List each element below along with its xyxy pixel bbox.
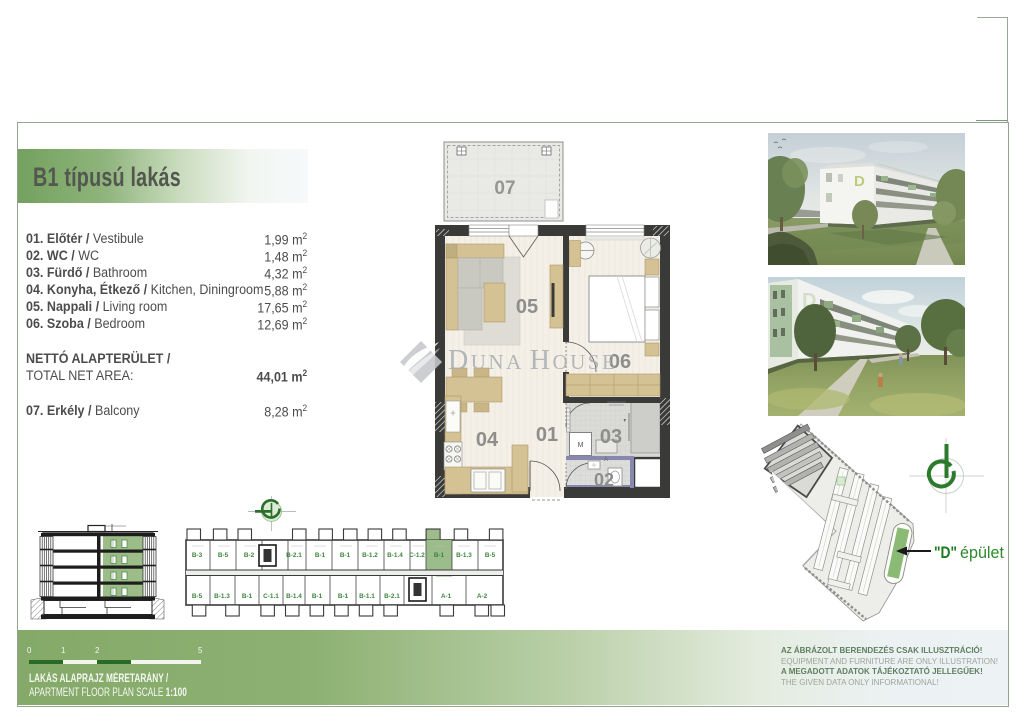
svg-text:07: 07 — [494, 178, 515, 199]
svg-text:B-2.1: B-2.1 — [286, 552, 302, 559]
svg-text:A: A — [604, 457, 608, 463]
svg-text:B-1.4: B-1.4 — [286, 593, 302, 600]
svg-text:épület: épület — [960, 544, 1004, 562]
svg-text:B-1: B-1 — [315, 552, 326, 559]
svg-text:B-2.1: B-2.1 — [384, 593, 400, 600]
svg-text:B-1.4: B-1.4 — [387, 552, 403, 559]
svg-text:A-2: A-2 — [477, 593, 488, 600]
svg-text:01: 01 — [536, 424, 558, 446]
svg-text:B-1: B-1 — [242, 593, 253, 600]
svg-text:C-1.2: C-1.2 — [409, 552, 425, 559]
svg-text:03: 03 — [600, 426, 622, 448]
svg-text:DUNAHOUSE: DUNAHOUSE — [448, 345, 617, 376]
svg-text:B-5: B-5 — [485, 552, 496, 559]
svg-text:B-5: B-5 — [218, 552, 229, 559]
svg-text:B-1.1: B-1.1 — [359, 593, 375, 600]
svg-text:C-1.1: C-1.1 — [263, 593, 279, 600]
svg-text:B-1: B-1 — [338, 593, 349, 600]
svg-text:04: 04 — [476, 429, 499, 451]
svg-text:B-3: B-3 — [192, 552, 203, 559]
svg-text:M: M — [578, 442, 584, 449]
svg-text:B-1.2: B-1.2 — [362, 552, 378, 559]
svg-text:B-5: B-5 — [192, 593, 203, 600]
svg-text:B-1: B-1 — [434, 552, 445, 559]
svg-text:02: 02 — [594, 470, 614, 490]
svg-text:B-2: B-2 — [244, 552, 255, 559]
svg-text:A-1: A-1 — [441, 593, 452, 600]
svg-text:B-1.3: B-1.3 — [456, 552, 472, 559]
svg-text:05: 05 — [516, 296, 538, 318]
svg-text:"D": "D" — [934, 544, 957, 562]
svg-text:B-1: B-1 — [340, 552, 351, 559]
svg-text:B-1.3: B-1.3 — [214, 593, 230, 600]
svg-text:B-1: B-1 — [312, 593, 323, 600]
svg-text:D: D — [854, 173, 865, 190]
